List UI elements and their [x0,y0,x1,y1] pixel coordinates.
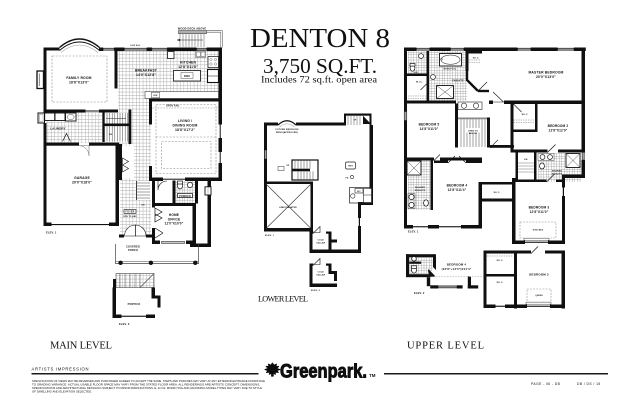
svg-text:UP: UP [354,120,357,122]
svg-text:MASTER BEDROOM: MASTER BEDROOM [528,71,563,75]
svg-text:SHARED: SHARED [552,170,562,173]
svg-text:DB / DS / 15: DB / DS / 15 [577,382,601,386]
svg-text:FD: FD [346,177,349,179]
svg-text:ARTISTS IMPRESSION: ARTISTS IMPRESSION [32,367,89,372]
svg-text:LOW SILL: LOW SILL [130,45,141,47]
svg-text:KING BED: KING BED [533,230,544,232]
svg-text:14'8"X11'0": 14'8"X11'0" [420,127,439,131]
svg-text:DINING ROOM: DINING ROOM [172,124,197,128]
svg-text:CELLAR: CELLAR [316,273,325,276]
svg-text:WC: WC [357,191,361,193]
svg-text:(12'8"+14'0")X11'4": (12'8"+14'0")X11'4" [442,267,472,271]
svg-text:OPEN RAIL: OPEN RAIL [166,105,180,108]
svg-text:ELEV. 2: ELEV. 2 [311,290,321,292]
svg-text:DENTON 8: DENTON 8 [250,23,390,53]
svg-text:20'0"X13'0": 20'0"X13'0" [536,75,556,79]
svg-text:PORTICO: PORTICO [128,302,141,306]
svg-text:ELEV. 1: ELEV. 1 [46,231,57,235]
svg-text:CELLAR: CELLAR [316,241,325,244]
svg-text:ELEV. 1: ELEV. 1 [408,230,419,234]
svg-text:ELEV. 2: ELEV. 2 [119,322,130,326]
svg-text:UNEXCAVATED: UNEXCAVATED [279,206,297,209]
svg-text:ENSUITE: ENSUITE [415,190,426,192]
svg-text:TO GRADING VARIANCE. ACTUAL U: TO GRADING VARIANCE. ACTUAL USABLE FLOOR… [32,383,260,386]
svg-text:PAGE - 06 - DB: PAGE - 06 - DB [531,382,561,386]
svg-text:COVERED: COVERED [126,245,140,249]
svg-text:GARAGE: GARAGE [74,176,90,180]
svg-text:W.I.C.: W.I.C. [494,192,501,194]
svg-text:TM: TM [369,373,376,378]
svg-text:COLD: COLD [318,272,325,274]
svg-text:COLD: COLD [318,240,325,242]
svg-text:LAUNDRY: LAUNDRY [50,127,66,131]
svg-text:SHARED: SHARED [415,186,425,189]
svg-text:LAV: LAV [414,71,419,74]
svg-text:WHIRLPOOL: WHIRLPOOL [444,69,458,71]
svg-text:Greenpark.: Greenpark. [280,362,367,383]
svg-text:KITCHEN: KITCHEN [180,61,197,65]
svg-text:LOWER LEVEL: LOWER LEVEL [258,295,308,304]
svg-text:12'8"X11'0": 12'8"X11'0" [530,210,549,214]
svg-text:FUTURE BEDROOM: FUTURE BEDROOM [275,129,298,131]
svg-text:W.I.C.: W.I.C. [473,58,480,60]
svg-text:ELEV. 1: ELEV. 1 [265,235,275,237]
svg-text:QUEEN: QUEEN [535,295,543,297]
svg-text:18'8"X17'2": 18'8"X17'2" [175,128,195,132]
svg-text:SINK: SINK [184,75,190,78]
svg-text:ENSUITE: ENSUITE [452,80,464,83]
svg-text:UPPER LEVEL: UPPER LEVEL [407,341,484,352]
svg-text:11'0"X10'0": 11'0"X10'0" [165,222,184,226]
svg-text:UP: UP [286,165,290,167]
svg-text:MAIN LEVEL: MAIN LEVEL [50,341,112,352]
svg-text:18'8"X13'0": 18'8"X13'0" [69,81,89,85]
svg-text:W.I.C.: W.I.C. [416,82,423,84]
svg-text:PORCH: PORCH [128,248,138,252]
svg-text:20'0"X18'0": 20'0"X18'0" [72,181,92,185]
svg-text:BREAKFAST: BREAKFAST [135,69,158,73]
svg-text:BEDROOM 3: BEDROOM 3 [529,273,549,277]
svg-text:DN: DN [141,205,145,207]
svg-text:LIN.: LIN. [524,159,528,161]
svg-text:W.I.C.: W.I.C. [522,114,529,116]
svg-text:BELOW: BELOW [469,133,477,135]
svg-text:WOOD DECK ABOVE: WOOD DECK ABOVE [178,27,207,31]
svg-text:W.I.C.: W.I.C. [497,260,504,262]
svg-text:12'8"X11'8": 12'8"X11'8" [178,65,198,69]
svg-text:DN: DN [109,134,113,136]
svg-text:Includes 72 sq.ft. open area: Includes 72 sq.ft. open area [261,75,377,85]
svg-text:12'8"X11'4": 12'8"X11'4" [448,188,467,192]
svg-text:LIVING /: LIVING / [178,119,192,123]
svg-text:FAMILY ROOM: FAMILY ROOM [66,76,91,80]
svg-text:RENO(APPROVED): RENO(APPROVED) [276,131,298,134]
svg-text:W.I.C.: W.I.C. [497,282,504,284]
svg-text:OF DWELLING AND ELEVATION SELE: OF DWELLING AND ELEVATION SELECTED. [32,391,92,394]
svg-text:ELEV. 2: ELEV. 2 [414,291,425,295]
svg-text:POWDER: POWDER [179,195,191,198]
svg-text:12'8"X12'0": 12'8"X12'0" [549,128,568,132]
svg-text:SPECIFICATIONS AND ARCHITECTUR: SPECIFICATIONS AND ARCHITECTURAL DETAILI… [32,387,262,390]
svg-text:SPECIFICATION OF VIEWS MAY BE: SPECIFICATION OF VIEWS MAY BE REVERSED A… [32,380,265,383]
svg-text:FOYER: FOYER [126,211,135,214]
svg-text:HWT: HWT [348,166,354,168]
svg-text:OPN TO ABV: OPN TO ABV [123,215,137,218]
svg-text:14'0"X12'8": 14'0"X12'8" [136,73,156,77]
